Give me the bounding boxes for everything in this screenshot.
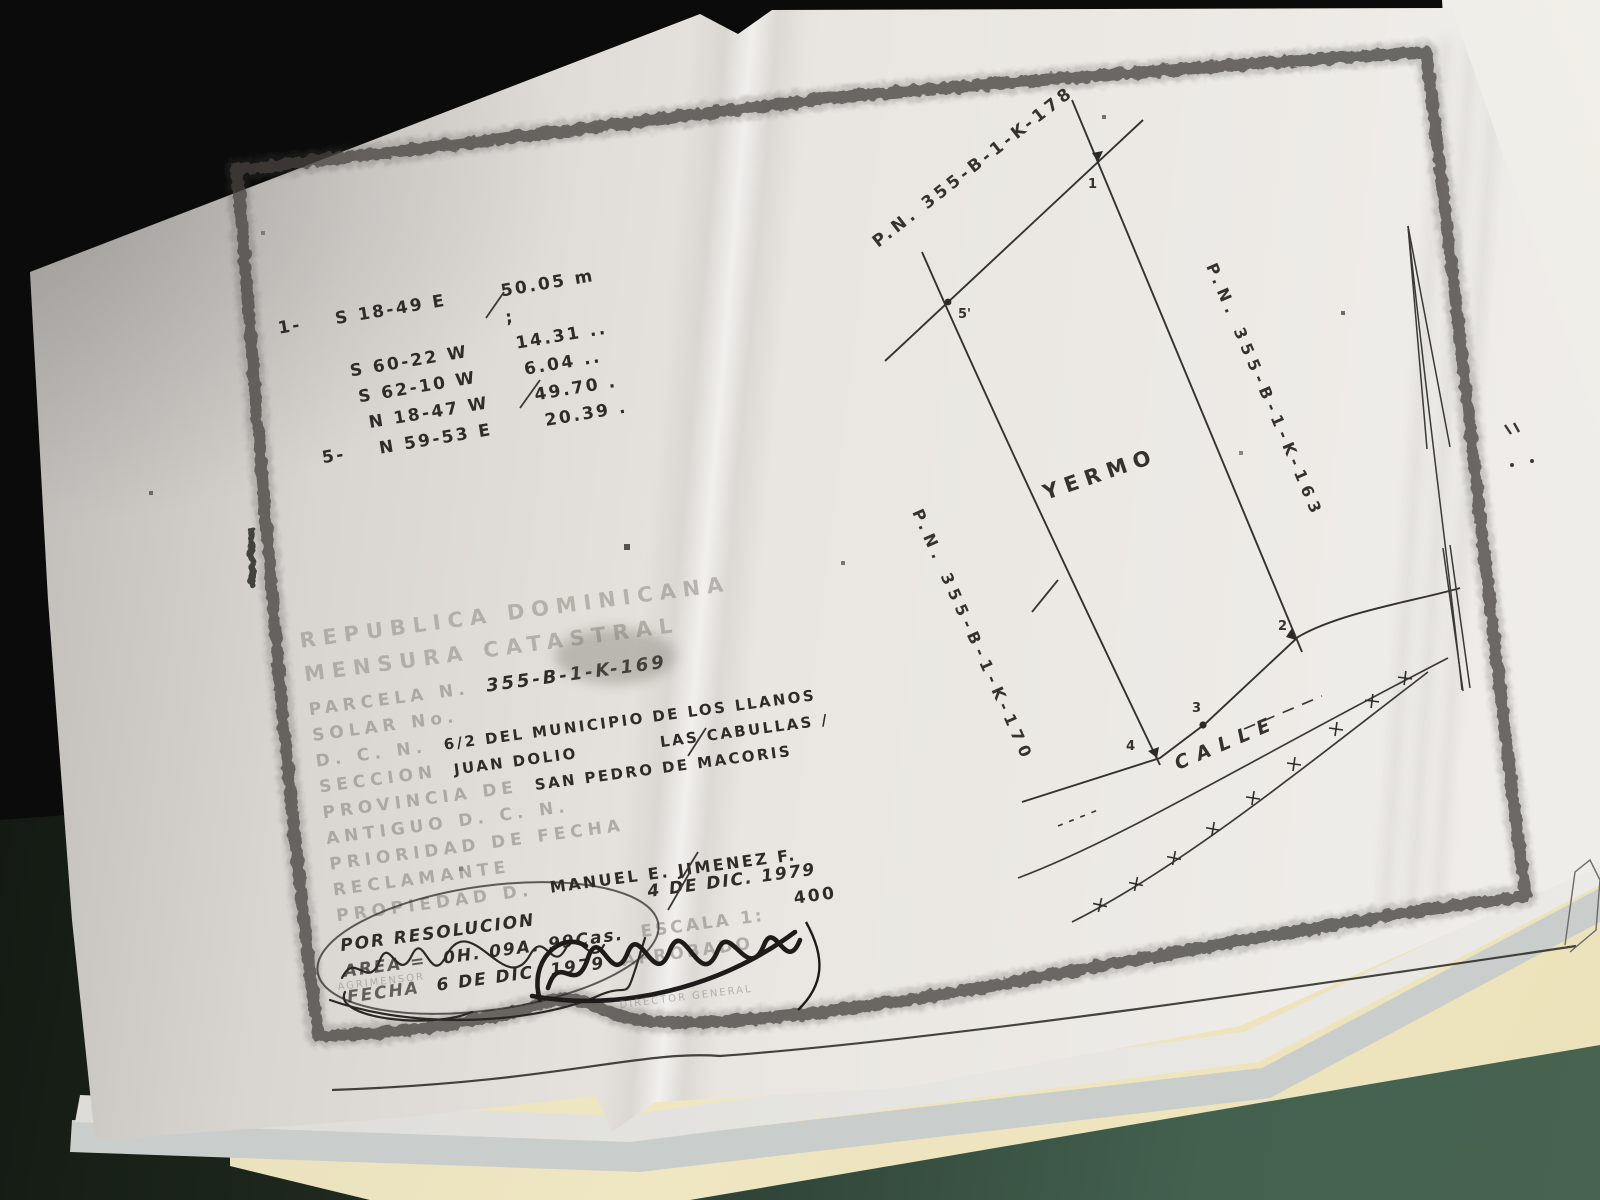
ink-scribble-left-border xyxy=(251,530,252,584)
plat-drawing: P.N. 355-B-1-K-178 P.N. 355-B-1-K-163 P.… xyxy=(0,0,1600,1200)
corner-5-label: 5' xyxy=(958,307,971,322)
corner-3-label: 3 xyxy=(1192,701,1201,716)
photo-of-survey-plan: NEVER 1- S 18-49 E 50.05 m ; S 60-22 W 1… xyxy=(0,0,1600,1200)
leader-tick xyxy=(1032,580,1058,612)
road-frontage-line xyxy=(1022,588,1460,802)
north-boundary-line xyxy=(885,120,1143,361)
label-yermo: YERMO xyxy=(1039,443,1161,505)
corner-4-label: 4 xyxy=(1126,739,1135,754)
agrimensor-label: AGRIMENSOR xyxy=(337,971,426,993)
label-parcel-west: P.N. 355-B-1-K-170 xyxy=(908,506,1037,766)
closing-paren-stroke xyxy=(798,922,819,1010)
stray-ink-marks xyxy=(486,292,1600,952)
pencil-scribble-right-edge xyxy=(1565,860,1600,952)
photocopy-frame xyxy=(236,52,1526,1036)
label-parcel-east: P.N. 355-B-1-K-163 xyxy=(1202,260,1327,521)
road-far-edge-line xyxy=(1018,658,1448,878)
corner-4-mark xyxy=(1148,747,1159,758)
corner-1-label: 1 xyxy=(1088,177,1097,192)
corner-2-label: 2 xyxy=(1278,619,1287,634)
label-parcel-north: P.N. 355-B-1-K-178 xyxy=(869,82,1078,252)
corner-3-mark xyxy=(1199,721,1206,728)
west-boundary-line xyxy=(922,252,1160,765)
north-arrow-left-edge xyxy=(1408,226,1427,449)
road-centerline-dashes-left xyxy=(1058,810,1098,826)
corner-5-mark xyxy=(945,299,952,306)
label-calle: CALLE xyxy=(1171,711,1282,775)
fence-x-marks xyxy=(1093,671,1412,912)
